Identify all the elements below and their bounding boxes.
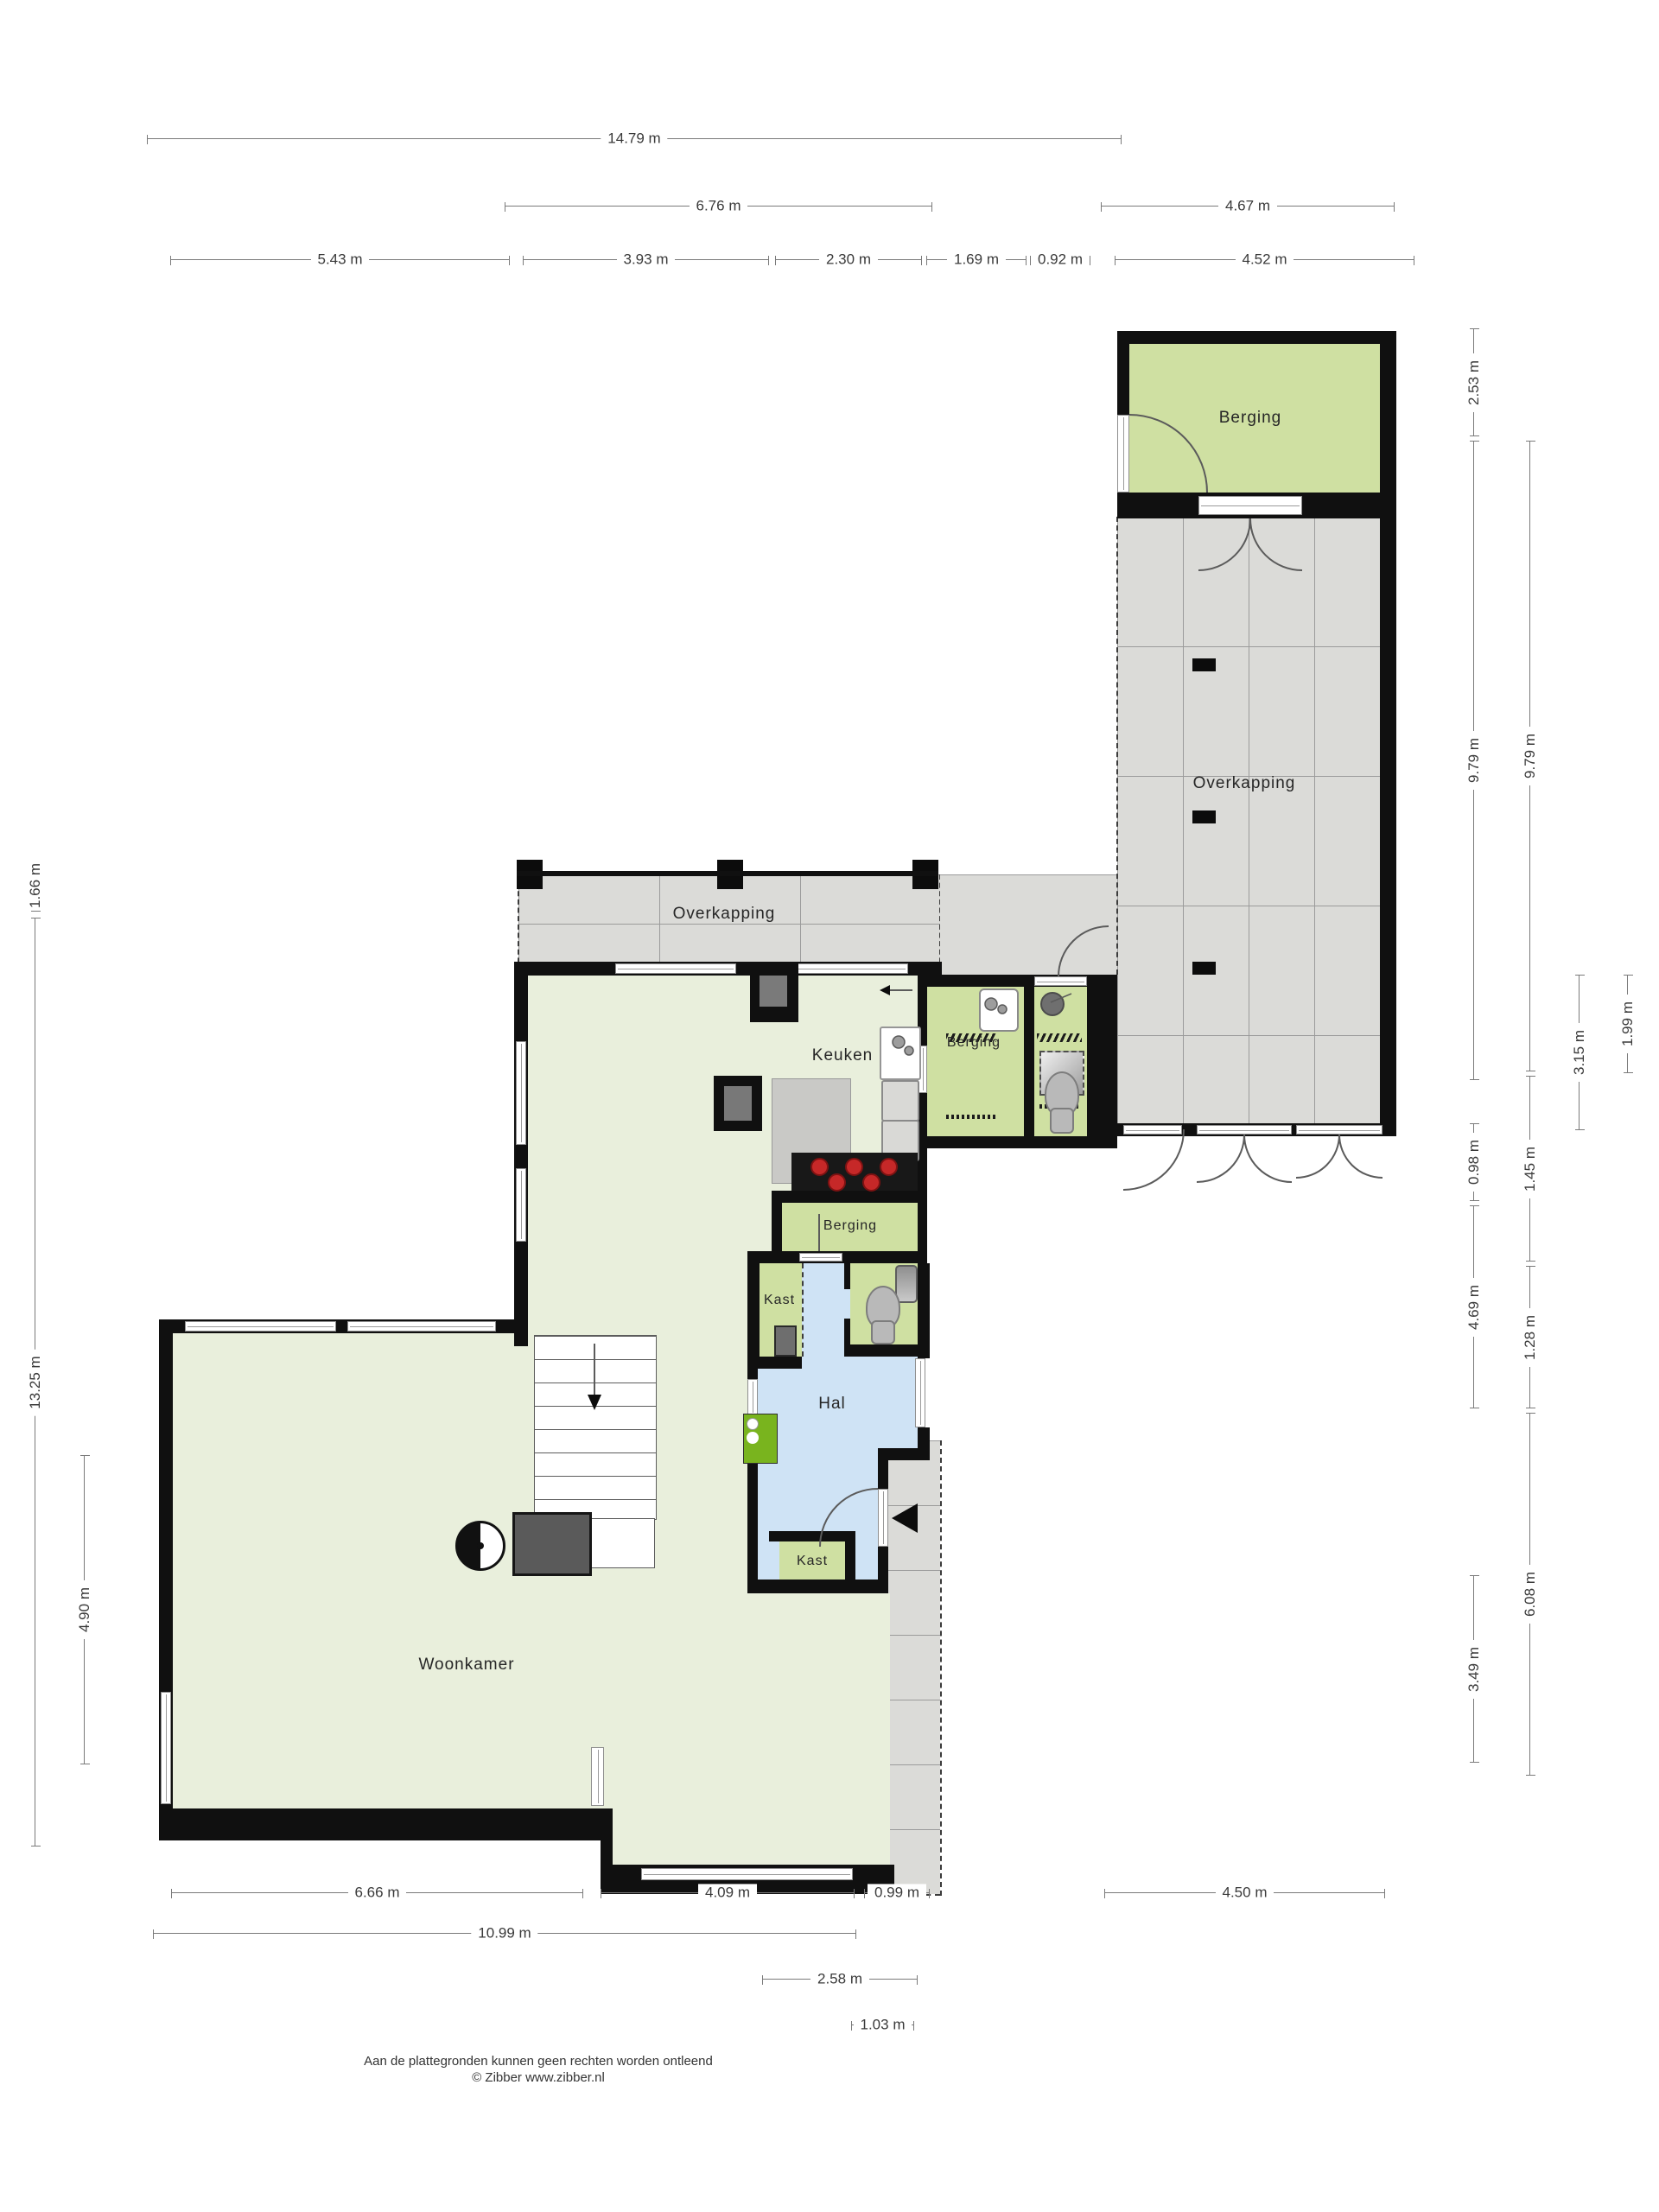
dim-right-349: 3.49 m [1473, 1575, 1474, 1763]
dim-right-315: 3.15 m [1579, 975, 1580, 1130]
wall [844, 1319, 850, 1344]
kast-upper-dashed-edge [802, 1263, 804, 1357]
burner [862, 1173, 880, 1192]
window [516, 1041, 526, 1145]
room-label-overkapping-right: Overkapping [1193, 774, 1296, 793]
dim-right-128: 1.28 m [1529, 1266, 1530, 1408]
berging-top-door-opening [1117, 415, 1129, 493]
radiator [1037, 1033, 1082, 1042]
garage-door-opening [1123, 1125, 1182, 1135]
wall [1380, 331, 1396, 1136]
footer-copyright: © Zibber www.zibber.nl [472, 2070, 605, 2085]
room-label-overkapping-mid: Overkapping [673, 905, 776, 924]
wall [1117, 331, 1396, 344]
burner [845, 1158, 863, 1176]
chimney-block [512, 1512, 592, 1576]
room-label-woonkamer: Woonkamer [418, 1656, 514, 1675]
woonkamer-right-floor [760, 1593, 890, 1808]
dim-bottom-409: 4.09 m [601, 1892, 855, 1893]
cupboard [774, 1325, 797, 1357]
room-label-keuken: Keuken [812, 1046, 873, 1065]
pergola-beam [517, 871, 938, 876]
wall [844, 1344, 928, 1357]
kitchen-pillar-core [724, 1086, 752, 1121]
dim-left-490: 4.90 m [84, 1455, 85, 1764]
post [1192, 658, 1216, 671]
wall [1087, 975, 1117, 1136]
room-label-berging-top: Berging [1219, 409, 1282, 428]
overkapping-right-floor [1117, 517, 1380, 1123]
porch-dashed-right [940, 1440, 942, 1896]
window [747, 1379, 758, 1415]
dim-right-469: 4.69 m [1473, 1205, 1474, 1408]
dim-top-393: 3.93 m [523, 259, 769, 260]
burner [810, 1158, 829, 1176]
wall [514, 962, 528, 1346]
chimney-flue [750, 962, 798, 1022]
dim-bottom-258: 2.58 m [762, 1979, 918, 1980]
toilet-base [871, 1320, 895, 1344]
washbasin [979, 988, 1019, 1032]
overkapping-right-dashed-left [1116, 517, 1118, 975]
shower-head [1040, 992, 1065, 1016]
dim-right-979b: 9.79 m [1529, 441, 1530, 1071]
window [185, 1321, 336, 1332]
room-label-berging-hal: Berging [823, 1218, 877, 1234]
boiler-unit [743, 1414, 778, 1464]
wall [747, 1580, 888, 1593]
dim-top-467: 4.67 m [1101, 206, 1395, 207]
window [915, 1358, 925, 1427]
room-label-kast-upper: Kast [764, 1293, 795, 1308]
wall [772, 1191, 782, 1251]
wall [601, 1808, 613, 1869]
floor-plan: Berging Overkapping Overkapping Keuken B… [0, 0, 1659, 2212]
entrance-arrow [892, 1503, 918, 1533]
dim-bottom-666: 6.66 m [171, 1892, 583, 1893]
burner [880, 1158, 898, 1176]
wall [769, 1531, 855, 1541]
dim-top-230: 2.30 m [775, 259, 922, 260]
kitchen-sink [880, 1027, 921, 1080]
dim-top-676: 6.76 m [505, 206, 932, 207]
dim-left-166: 1.66 m [35, 860, 35, 912]
window [1034, 976, 1087, 986]
staircase [534, 1335, 657, 1520]
dim-bottom-1099: 10.99 m [153, 1933, 856, 1934]
dim-bottom-103: 1.03 m [851, 2024, 914, 2025]
dim-right-145: 1.45 m [1529, 1076, 1530, 1262]
toilet-base [1050, 1108, 1074, 1134]
front-door-opening [878, 1489, 888, 1547]
footer-disclaimer: Aan de plattegronden kunnen geen rechten… [364, 2054, 713, 2069]
window [161, 1692, 171, 1804]
window [615, 963, 736, 974]
door-opening [799, 1253, 842, 1262]
window [347, 1321, 496, 1332]
wall [878, 1448, 930, 1460]
wall [747, 1357, 802, 1369]
dim-top-169: 1.69 m [926, 259, 1027, 260]
room-label-kast-lower: Kast [797, 1554, 828, 1569]
dim-bottom-099: 0.99 m [864, 1892, 930, 1893]
dim-top-452: 4.52 m [1115, 259, 1414, 260]
wall [159, 1808, 613, 1840]
wall [747, 1251, 760, 1358]
kitchen-appliance [881, 1080, 919, 1122]
window [641, 1868, 853, 1880]
dim-top-092: 0.92 m [1030, 259, 1090, 260]
double-door-frame [1198, 496, 1302, 515]
post [1192, 810, 1216, 823]
dim-right-098: 0.98 m [1473, 1123, 1474, 1201]
wall [918, 1136, 1117, 1148]
wall [772, 1191, 918, 1203]
window [591, 1747, 604, 1806]
wall [1024, 987, 1034, 1136]
fireplace-stove [455, 1521, 505, 1571]
room-label-hal: Hal [818, 1395, 846, 1414]
dim-left-1325: 13.25 m [35, 918, 35, 1847]
dim-bottom-450: 4.50 m [1104, 1892, 1385, 1893]
room-label-berging-mid: Berging [947, 1035, 1001, 1051]
burner [828, 1173, 846, 1192]
dim-right-608: 6.08 m [1529, 1413, 1530, 1776]
garage-door-opening [1296, 1125, 1382, 1135]
dim-right-979a: 9.79 m [1473, 441, 1474, 1080]
dim-right-253: 2.53 m [1473, 328, 1474, 436]
window [516, 1168, 526, 1242]
dim-right-199: 1.99 m [1627, 975, 1628, 1073]
dim-top-1479: 14.79 m [147, 138, 1122, 139]
radiator [946, 1115, 996, 1119]
garage-door-opening [1197, 1125, 1292, 1135]
wall [878, 1460, 888, 1489]
wall [844, 1263, 850, 1289]
post [1192, 962, 1216, 975]
woonkamer-bottom-floor [613, 1808, 890, 1869]
dim-top-543: 5.43 m [170, 259, 510, 260]
walkway-floor [940, 874, 1117, 976]
